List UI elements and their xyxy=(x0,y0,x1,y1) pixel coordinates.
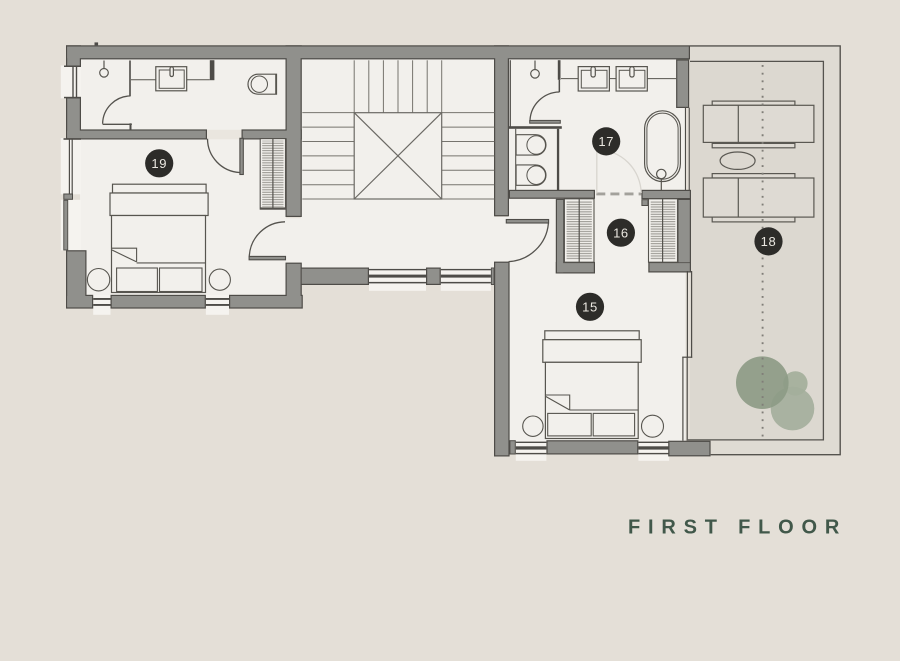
svg-text:15: 15 xyxy=(582,299,598,314)
svg-text:18: 18 xyxy=(761,234,777,249)
svg-text:16: 16 xyxy=(613,225,629,240)
svg-text:FIRST FLOOR: FIRST FLOOR xyxy=(628,517,847,539)
svg-text:19: 19 xyxy=(151,156,167,171)
svg-text:17: 17 xyxy=(598,134,614,149)
